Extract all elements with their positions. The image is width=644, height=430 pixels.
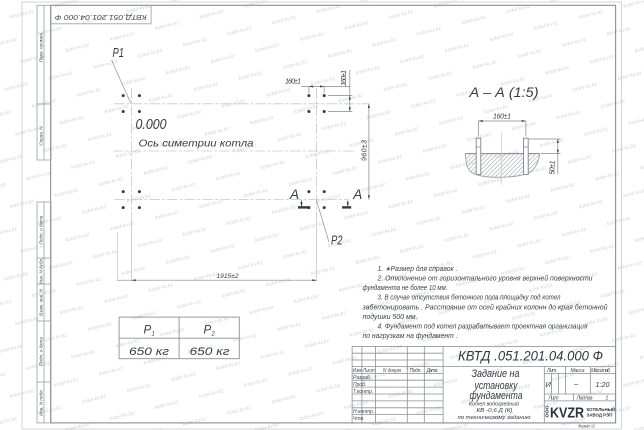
svg-text:Масштаб: Масштаб [591, 368, 610, 374]
svg-text:Т.контр.: Т.контр. [353, 389, 373, 395]
svg-text:Задание на: Задание на [472, 368, 520, 380]
svg-text:фундамента не более 10 мм.: фундамента не более 10 мм. [363, 284, 448, 292]
svg-text:960±3: 960±3 [362, 140, 369, 161]
svg-text:по нагрузкам на фундамент .: по нагрузкам на фундамент . [363, 332, 458, 340]
svg-text:Разраб.: Разраб. [353, 375, 371, 381]
svg-text:Инв. N подл.: Инв. N подл. [38, 389, 43, 416]
svg-text:Р1: Р1 [113, 45, 125, 60]
svg-text:И: И [546, 380, 552, 389]
svg-text:650 кг: 650 кг [190, 346, 231, 358]
svg-text:ЗАВОД РЭП: ЗАВОД РЭП [587, 413, 613, 418]
svg-text:0.000: 0.000 [136, 117, 167, 133]
svg-text:1915±2: 1915±2 [217, 273, 239, 280]
svg-text:Инв. N дубл.: Инв. N дубл. [38, 258, 43, 285]
svg-text:N докум.: N докум. [383, 368, 402, 374]
svg-text:Р: Р [204, 325, 212, 337]
svg-text:Листов: Листов [576, 395, 593, 401]
svg-text:50±1: 50±1 [550, 160, 557, 174]
svg-text:ООО: ООО [544, 405, 549, 417]
svg-text:Изм.Лист: Изм.Лист [353, 368, 375, 374]
svg-text:Р2: Р2 [331, 233, 343, 248]
svg-text:Чтв.: Чтв. [353, 416, 365, 422]
svg-text:KVZR: KVZR [550, 405, 584, 422]
svg-text:А – А (1:5): А – А (1:5) [468, 85, 538, 100]
svg-text:Подп. и дата: Подп. и дата [38, 337, 43, 366]
svg-text:160±1: 160±1 [493, 114, 511, 121]
svg-text:Ось симетрии котла: Ось симетрии котла [139, 138, 254, 150]
svg-text:А: А [352, 187, 362, 202]
svg-text:Р: Р [144, 325, 152, 337]
svg-text:Подп. и дата: Подп. и дата [38, 215, 43, 244]
svg-text:Котел водогрейный: Котел водогрейный [469, 401, 519, 408]
svg-text:3. В случае отсутствия бетонн: 3. В случае отсутствия бетонного пола пл… [378, 294, 561, 302]
svg-text:подушки 500 мм.: подушки 500 мм. [363, 313, 418, 321]
svg-text:Дата: Дата [426, 368, 438, 374]
svg-text:1. ∗Размер для справок .: 1. ∗Размер для справок . [378, 265, 458, 273]
svg-text:КВТД .051.201.04.000 Ф: КВТД .051.201.04.000 Ф [458, 348, 603, 364]
svg-text:Проб.: Проб. [353, 382, 366, 388]
svg-text:Лит.: Лит. [546, 368, 557, 374]
svg-text:фундамента: фундамента [470, 390, 523, 402]
svg-text:Лист: Лист [548, 395, 559, 401]
svg-text:КВТД.051.201.04.000 Ф: КВТД.051.201.04.000 Ф [54, 13, 146, 22]
svg-text:Масса: Масса [571, 368, 585, 374]
svg-text:Формат А3: Формат А3 [578, 423, 595, 428]
svg-text:650 кг: 650 кг [129, 346, 170, 358]
svg-text:1: 1 [606, 395, 609, 401]
svg-text:2: 2 [211, 332, 216, 338]
svg-text:1: 1 [152, 332, 155, 338]
svg-text:160±1: 160±1 [341, 70, 348, 86]
svg-text:Подп.: Подп. [410, 368, 422, 374]
svg-text:2. Отклонение от горизонтальн: 2. Отклонение от горизонтального уровня … [377, 275, 593, 283]
svg-text:КВ -0,6 Д (К): КВ -0,6 Д (К) [477, 408, 513, 414]
svg-text:КОТЕЛЬНЫЙ: КОТЕЛЬНЫЙ [587, 407, 616, 412]
svg-text:по техническому заданию: по техническому заданию [458, 415, 531, 421]
svg-text:А: А [289, 187, 299, 202]
svg-text:забетонировать . Расстояние от: забетонировать . Расстояние от осей край… [362, 303, 608, 311]
svg-text:Взам. инв. N: Взам. инв. N [38, 288, 43, 315]
svg-text:4. Фундамент под котел разраб: 4. Фундамент под котел разрабатывает про… [378, 322, 588, 330]
svg-text:Перв. примен.: Перв. примен. [38, 32, 43, 63]
svg-text:160±1: 160±1 [285, 79, 301, 86]
svg-text:Н.контр.: Н.контр. [353, 409, 374, 415]
svg-text:–: – [573, 379, 579, 388]
svg-text:1:20: 1:20 [596, 380, 611, 389]
svg-text:Справ. N: Справ. N [38, 126, 43, 146]
